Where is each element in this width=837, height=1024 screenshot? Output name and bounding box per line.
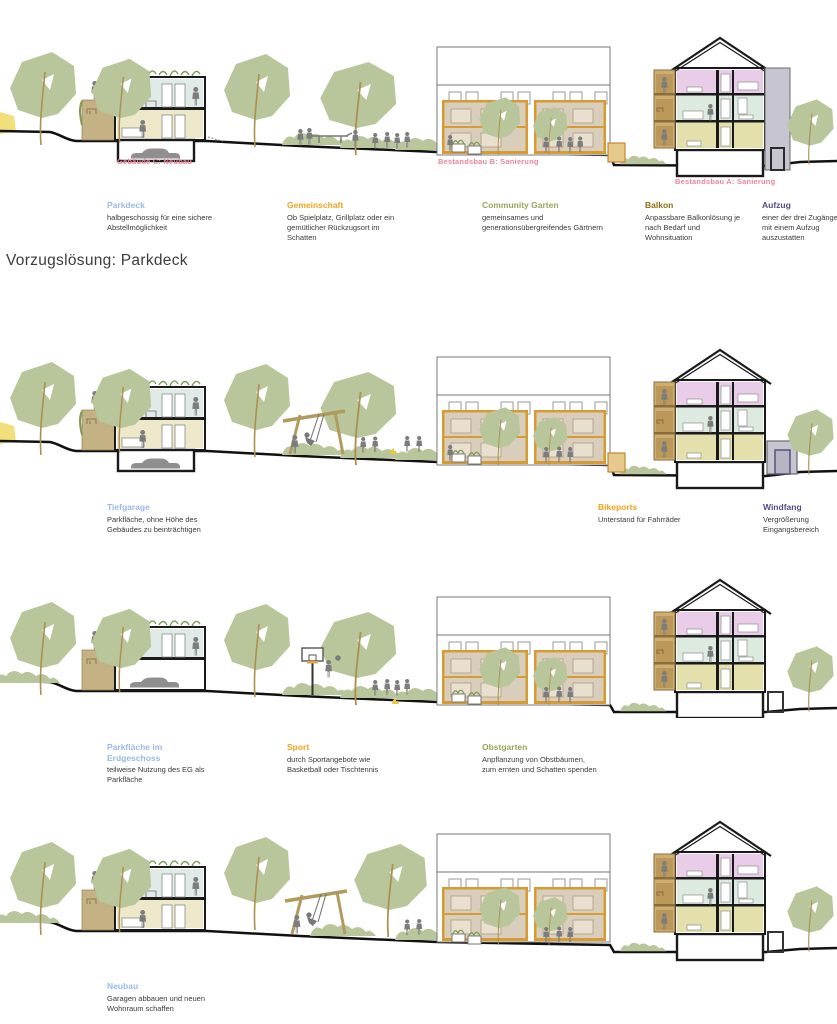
planter [452, 450, 465, 462]
annotation-heading: Neubau [107, 981, 225, 992]
annotation-bikeports: Bikeports Unterstand für Fahrräder [598, 502, 698, 525]
annotation-body: Garagen abbauen und neuen Wohnraum schaf… [107, 994, 225, 1014]
elevator-shaft [765, 68, 790, 170]
annotation-windfang: Windfang Vergrößerung Eingangsbereich [763, 502, 837, 535]
annotation-heading: Tiefgarage [107, 502, 225, 513]
tree [787, 99, 833, 164]
building-a-section [654, 350, 771, 488]
entry-door [768, 692, 783, 712]
building-label-bestandsbau-a: Bestandsbau A: Sanierung [675, 177, 775, 186]
planter [452, 930, 465, 942]
bush [282, 683, 348, 695]
annotation-obstgarten: Obstgarten Anpflanzung von Obstbäumen, z… [482, 742, 600, 775]
tree [224, 837, 290, 930]
annotation-neubau: Neubau Garagen abbauen und neuen Wohnrau… [107, 981, 225, 1014]
basketball [335, 655, 341, 661]
tree [224, 604, 290, 697]
annotation-body: gemeinsames und generationsübergreifende… [482, 213, 608, 233]
annotation-body: halbgeschossig für eine sichere Abstellm… [107, 213, 225, 233]
annotation-body: Unterstand für Fahrräder [598, 515, 698, 525]
annotation-body: Anpassbare Balkonlösung je nach Bedarf u… [645, 213, 745, 243]
tree [224, 54, 290, 147]
bush [620, 943, 666, 951]
annotation-body: Ob Spielplatz, Grillplatz oder ein gemüt… [287, 213, 405, 243]
planter [452, 140, 465, 152]
toy-duck [390, 448, 397, 454]
annotation-heading: Windfang [763, 502, 837, 513]
section-drawing-neubau [0, 812, 837, 962]
building-b [437, 597, 610, 705]
annotation-heading: Bikeports [598, 502, 698, 513]
planter [468, 932, 481, 944]
annotation-tiefgarage: Tiefgarage Parkfläche, ohne Höhe des Geb… [107, 502, 225, 535]
tree [354, 844, 427, 937]
annotation-heading: Community Garten [482, 200, 608, 211]
building-b [437, 834, 610, 942]
tree [224, 364, 290, 457]
bush [620, 156, 666, 164]
annotation-body: Vergrößerung Eingangsbereich [763, 515, 837, 535]
bikeport-shed [608, 453, 625, 472]
tree [787, 886, 833, 951]
annotation-gemeinschaft: Gemeinschaft Ob Spielplatz, Grillplatz o… [287, 200, 405, 243]
annotation-heading: Balkon [645, 200, 745, 211]
building-a-section [654, 580, 771, 718]
annotation-community-garten: Community Garten gemeinsames und generat… [482, 200, 608, 233]
annotation-sport: Sport durch Sportangebote wie Basketball… [287, 742, 405, 775]
annotation-heading: Obstgarten [482, 742, 600, 753]
building-b [437, 47, 610, 155]
building-label-gebaeude-c: Gebäude C: Neubau [117, 157, 192, 166]
entry-door [768, 932, 783, 952]
page: Gebäude C: Neubau Bestandsbau B: Sanieru… [0, 0, 837, 1024]
building-label-bestandsbau-b: Bestandsbau B: Sanierung [438, 157, 539, 166]
bush [0, 671, 60, 683]
shed [608, 143, 625, 162]
annotation-balkon: Balkon Anpassbare Balkonlösung je nach B… [645, 200, 745, 243]
bush [0, 911, 60, 923]
annotation-body: teilweise Nutzung des EG als Parkfläche [107, 765, 225, 785]
bush [282, 133, 348, 145]
bush [620, 703, 666, 711]
planter [468, 452, 481, 464]
planter [452, 690, 465, 702]
section-drawing-parkflaeche [0, 572, 837, 718]
page-title: Vorzugslösung: Parkdeck [6, 252, 188, 270]
bush [620, 466, 666, 474]
building-a-section [654, 822, 771, 960]
planter [468, 142, 481, 154]
annotation-aufzug: Aufzug einer der drei Zugänge ist mit ei… [762, 200, 837, 243]
person-figure [404, 436, 410, 452]
annotation-heading: Parkfläche im Erdgeschoss [107, 742, 187, 763]
annotation-parkdeck: Parkdeck halbgeschossig für eine sichere… [107, 200, 225, 233]
planter [468, 692, 481, 704]
annotation-heading: Aufzug [762, 200, 837, 211]
annotation-body: Parkfläche, ohne Höhe des Gebäudes zu be… [107, 515, 225, 535]
annotation-body: einer der drei Zugänge ist mit einem Auf… [762, 213, 837, 243]
building-b [437, 357, 610, 465]
annotation-heading: Gemeinschaft [287, 200, 405, 211]
annotation-body: durch Sportangebote wie Basketball oder … [287, 755, 405, 775]
tree [787, 646, 833, 711]
annotation-parkflaeche-eg: Parkfläche im Erdgeschoss teilweise Nutz… [107, 742, 225, 785]
building-a-section [654, 38, 771, 176]
annotation-heading: Sport [287, 742, 405, 753]
annotation-heading: Parkdeck [107, 200, 225, 211]
annotation-body: Anpflanzung von Obstbäumen, zum ernten u… [482, 755, 600, 775]
section-drawing-tiefgarage [0, 330, 837, 496]
